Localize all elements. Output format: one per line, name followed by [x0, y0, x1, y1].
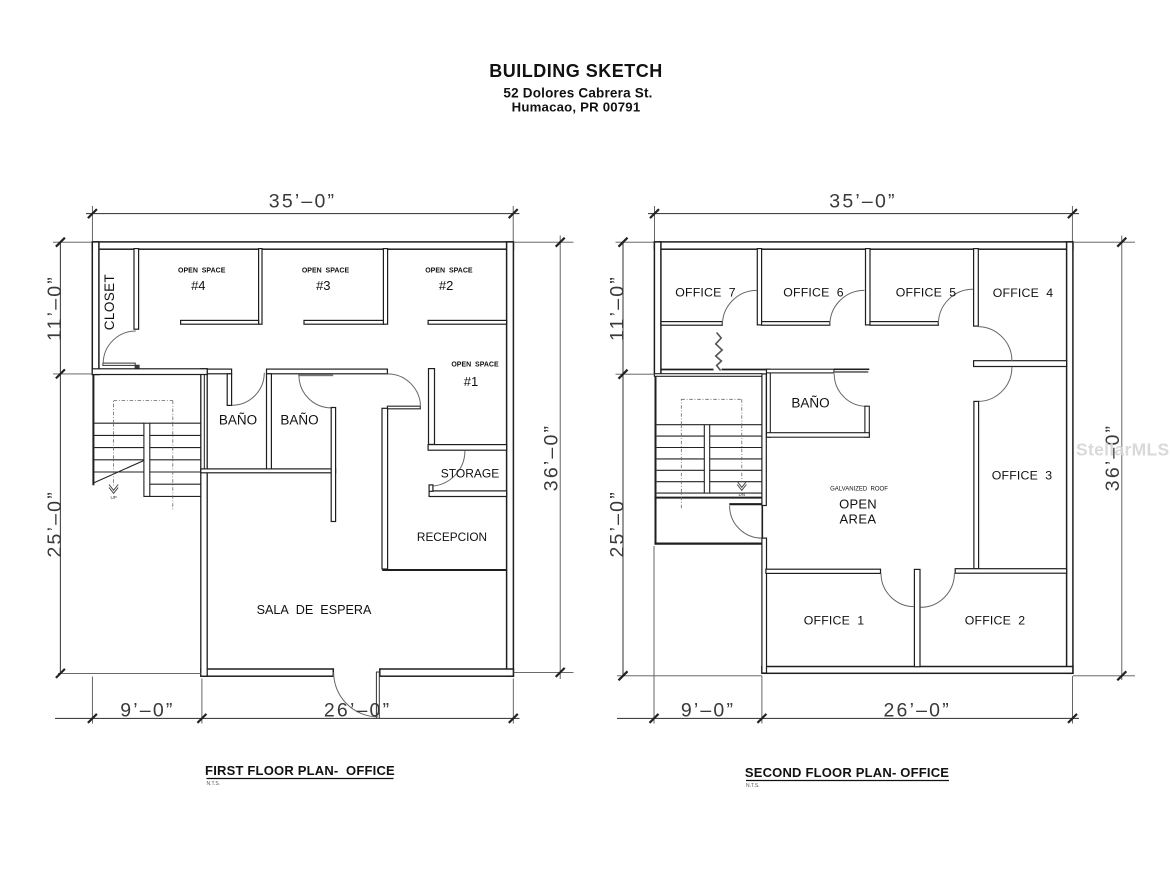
svg-text:BAÑO: BAÑO — [219, 413, 257, 428]
svg-text:OFFICE 6: OFFICE 6 — [783, 286, 844, 300]
svg-text:N.T.S.: N.T.S. — [746, 783, 760, 789]
svg-text:35’–0”: 35’–0” — [829, 191, 896, 213]
svg-text:DN: DN — [739, 492, 746, 497]
svg-text:26’–0”: 26’–0” — [324, 700, 391, 722]
svg-text:OFFICE 2: OFFICE 2 — [965, 614, 1026, 628]
svg-text:STORAGE: STORAGE — [441, 467, 499, 481]
svg-text:OFFICE 1: OFFICE 1 — [804, 614, 865, 628]
svg-text:SECOND FLOOR PLAN- OFFICE: SECOND FLOOR PLAN- OFFICE — [745, 765, 949, 780]
svg-text:SALA DE ESPERA: SALA DE ESPERA — [257, 603, 372, 617]
svg-text:FIRST FLOOR PLAN- OFFICE: FIRST FLOOR PLAN- OFFICE — [205, 763, 395, 778]
svg-text:RECEPCION: RECEPCION — [417, 530, 487, 544]
svg-text:#3: #3 — [316, 278, 330, 293]
svg-text:OPEN SPACE: OPEN SPACE — [302, 268, 350, 275]
svg-text:OPEN: OPEN — [839, 497, 877, 512]
svg-text:UP: UP — [110, 495, 116, 500]
svg-text:OFFICE 5: OFFICE 5 — [896, 286, 957, 300]
svg-text:AREA: AREA — [839, 512, 876, 527]
svg-text:36’–0”: 36’–0” — [541, 424, 563, 491]
svg-text:11’–0”: 11’–0” — [607, 275, 629, 341]
svg-text:BAÑO: BAÑO — [280, 413, 318, 428]
svg-text:35’–0”: 35’–0” — [269, 191, 336, 213]
svg-text:9’–0”: 9’–0” — [681, 700, 735, 722]
svg-text:BAÑO: BAÑO — [791, 396, 829, 411]
svg-text:N.T.S.: N.T.S. — [207, 781, 221, 787]
svg-text:Humacao, PR 00791: Humacao, PR 00791 — [512, 100, 641, 115]
svg-text:CLOSET: CLOSET — [102, 274, 117, 330]
svg-text:OPEN SPACE: OPEN SPACE — [451, 362, 499, 369]
svg-text:OPEN SPACE: OPEN SPACE — [425, 268, 473, 275]
svg-text:#1: #1 — [464, 374, 478, 389]
svg-text:9’–0”: 9’–0” — [120, 700, 174, 722]
svg-text:OFFICE 7: OFFICE 7 — [675, 286, 736, 300]
svg-text:BUILDING SKETCH: BUILDING SKETCH — [489, 61, 663, 81]
svg-text:52 Dolores Cabrera St.: 52 Dolores Cabrera St. — [503, 86, 652, 101]
svg-text:OFFICE 3: OFFICE 3 — [992, 469, 1053, 483]
svg-text:11’–0”: 11’–0” — [44, 275, 66, 341]
svg-text:25’–0”: 25’–0” — [607, 490, 629, 557]
svg-text:26’–0”: 26’–0” — [883, 700, 950, 722]
svg-text:25’–0”: 25’–0” — [44, 490, 66, 557]
svg-text:StellarMLS: StellarMLS — [1076, 440, 1169, 460]
svg-text:GALVANIZED ROOF: GALVANIZED ROOF — [830, 487, 888, 493]
svg-text:OFFICE 4: OFFICE 4 — [993, 286, 1054, 300]
svg-text:OPEN SPACE: OPEN SPACE — [178, 268, 226, 275]
svg-text:#4: #4 — [191, 278, 205, 293]
svg-text:#2: #2 — [439, 278, 453, 293]
